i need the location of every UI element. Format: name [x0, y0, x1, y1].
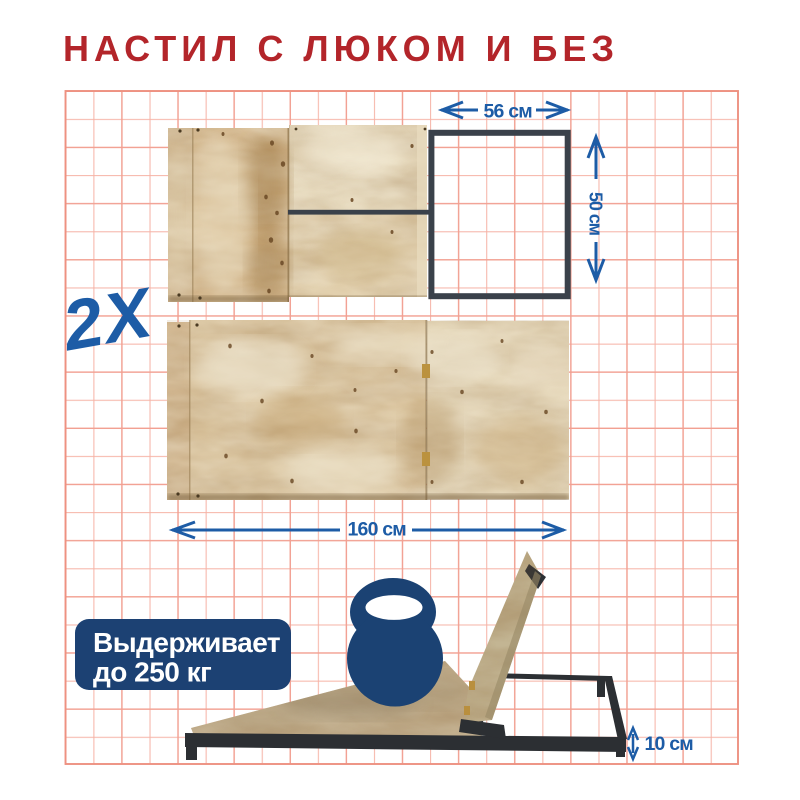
- svg-text:56 см: 56 см: [484, 101, 533, 123]
- svg-text:Выдерживает: Выдерживает: [93, 627, 280, 658]
- svg-text:до 250 кг: до 250 кг: [93, 657, 211, 688]
- svg-text:50 см: 50 см: [585, 192, 605, 236]
- svg-text:160 см: 160 см: [348, 519, 407, 541]
- svg-text:2X: 2X: [55, 272, 161, 365]
- svg-text:10 см: 10 см: [645, 733, 694, 755]
- svg-text:НАСТИЛ С ЛЮКОМ И БЕЗ: НАСТИЛ С ЛЮКОМ И БЕЗ: [63, 28, 619, 69]
